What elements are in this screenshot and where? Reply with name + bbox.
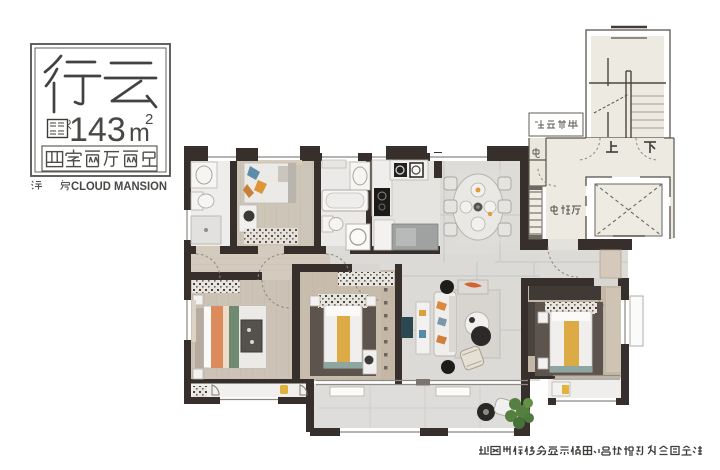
svg-text:CLOUD MANSION: CLOUD MANSION (71, 181, 167, 193)
svg-text:2: 2 (145, 111, 153, 128)
svg-text:143: 143 (69, 111, 126, 149)
